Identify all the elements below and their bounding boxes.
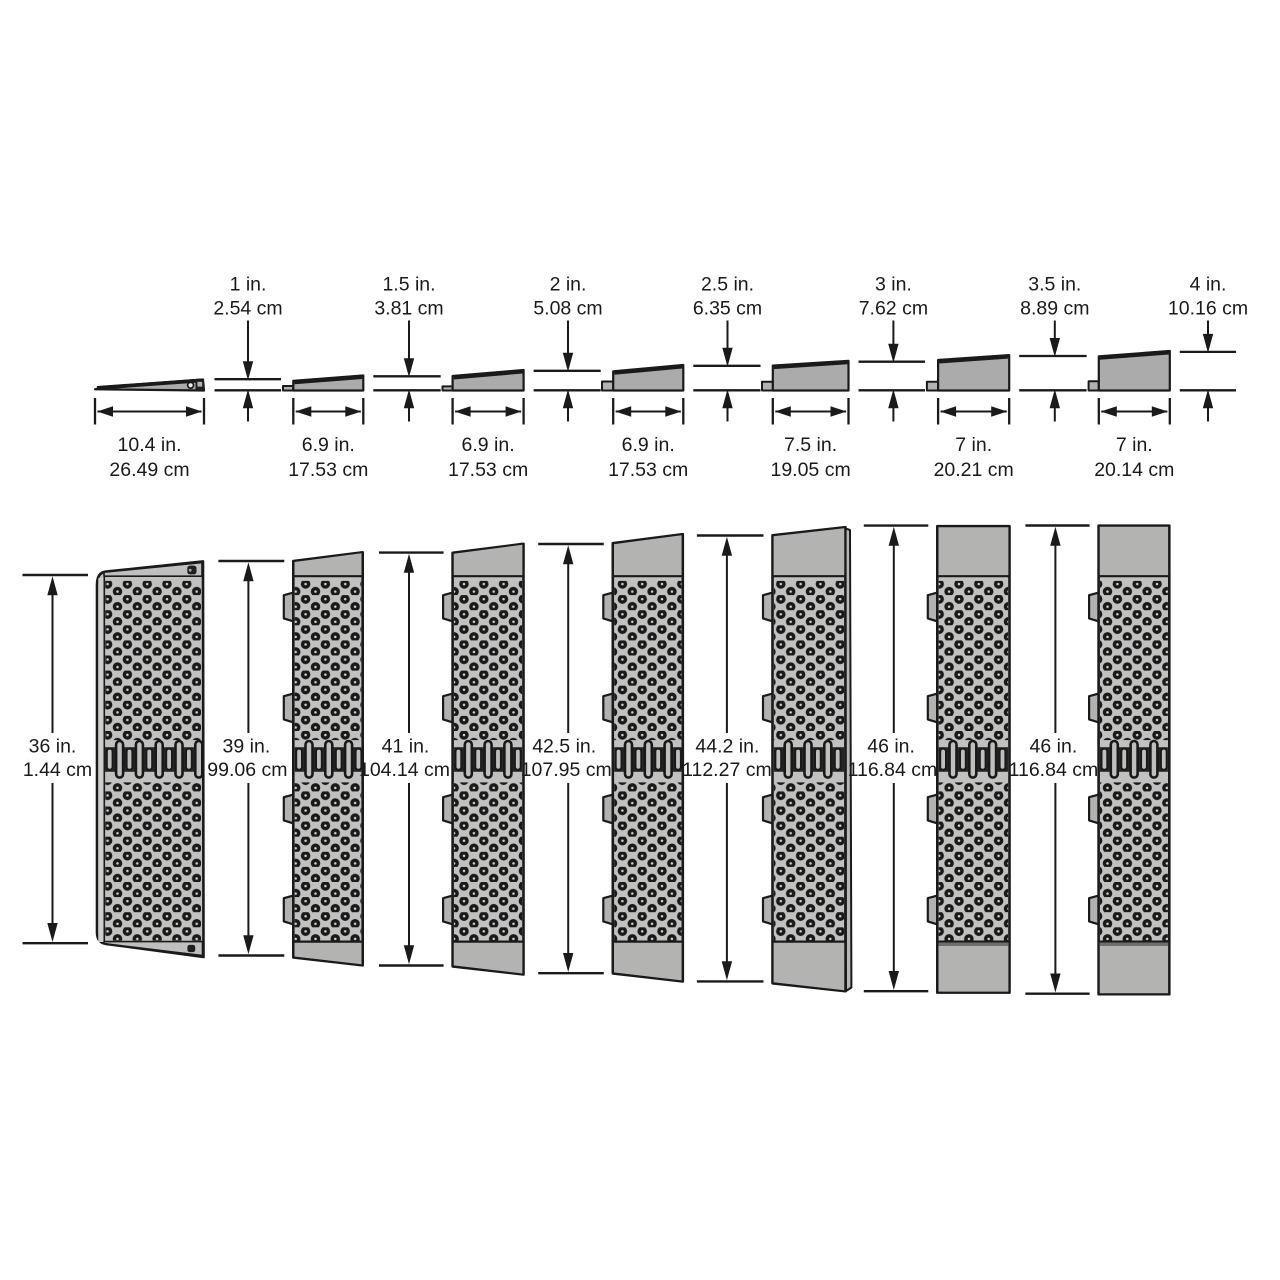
svg-text:7 in.: 7 in.	[1116, 434, 1153, 456]
svg-text:17.53 cm: 17.53 cm	[448, 459, 528, 481]
svg-text:17.53 cm: 17.53 cm	[288, 459, 368, 481]
svg-text:7.62 cm: 7.62 cm	[859, 298, 928, 320]
svg-text:3.81 cm: 3.81 cm	[374, 298, 443, 320]
svg-text:6.9 in.: 6.9 in.	[302, 434, 355, 456]
svg-text:5.08 cm: 5.08 cm	[533, 298, 602, 320]
svg-text:36 in.: 36 in.	[29, 736, 77, 758]
svg-text:2 in.: 2 in.	[550, 274, 587, 296]
svg-text:10.4 in.: 10.4 in.	[118, 434, 182, 456]
svg-text:3.5 in.: 3.5 in.	[1028, 274, 1081, 296]
svg-text:3 in.: 3 in.	[875, 274, 912, 296]
svg-text:26.49 cm: 26.49 cm	[109, 459, 189, 481]
svg-text:46 in.: 46 in.	[1030, 736, 1078, 758]
svg-text:6.9 in.: 6.9 in.	[622, 434, 675, 456]
svg-text:1.44 cm: 1.44 cm	[23, 759, 92, 781]
svg-text:99.06 cm: 99.06 cm	[207, 759, 287, 781]
svg-text:2.54 cm: 2.54 cm	[213, 298, 282, 320]
svg-text:4 in.: 4 in.	[1190, 274, 1227, 296]
svg-text:17.53 cm: 17.53 cm	[608, 459, 688, 481]
svg-text:41 in.: 41 in.	[382, 736, 430, 758]
svg-text:46 in.: 46 in.	[867, 736, 915, 758]
svg-text:1 in.: 1 in.	[230, 274, 267, 296]
svg-text:20.14 cm: 20.14 cm	[1094, 459, 1174, 481]
svg-text:44.2 in.: 44.2 in.	[695, 736, 759, 758]
svg-text:10.16 cm: 10.16 cm	[1168, 298, 1248, 320]
svg-text:6.35 cm: 6.35 cm	[693, 298, 762, 320]
svg-text:42.5 in.: 42.5 in.	[532, 736, 596, 758]
svg-text:7.5 in.: 7.5 in.	[784, 434, 837, 456]
svg-text:6.9 in.: 6.9 in.	[462, 434, 515, 456]
svg-text:2.5 in.: 2.5 in.	[701, 274, 754, 296]
svg-text:8.89 cm: 8.89 cm	[1020, 298, 1089, 320]
svg-text:112.27 cm: 112.27 cm	[682, 759, 772, 781]
svg-text:116.84 cm: 116.84 cm	[848, 759, 938, 781]
svg-text:116.84 cm: 116.84 cm	[1009, 759, 1099, 781]
svg-text:7 in.: 7 in.	[955, 434, 992, 456]
svg-text:1.5 in.: 1.5 in.	[382, 274, 435, 296]
svg-text:104.14 cm: 104.14 cm	[359, 759, 450, 781]
svg-text:107.95 cm: 107.95 cm	[521, 759, 612, 781]
svg-text:19.05 cm: 19.05 cm	[770, 459, 850, 481]
svg-text:20.21 cm: 20.21 cm	[934, 459, 1014, 481]
svg-text:39 in.: 39 in.	[223, 736, 271, 758]
